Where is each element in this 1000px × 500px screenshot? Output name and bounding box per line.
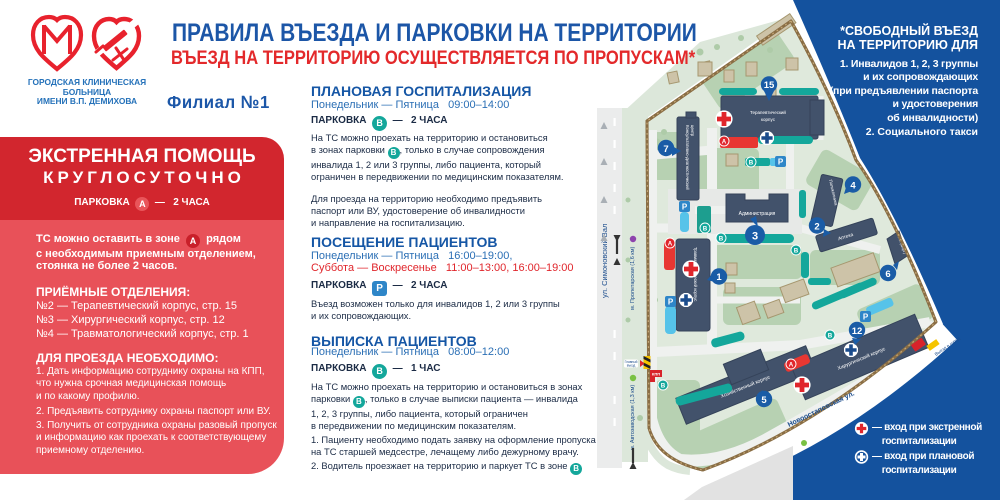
svg-text:корпус: корпус <box>761 117 776 122</box>
svg-text:В: В <box>828 333 833 340</box>
svg-text:12: 12 <box>852 326 863 337</box>
svg-text:А: А <box>668 241 673 248</box>
svg-text:P: P <box>668 298 674 307</box>
svg-text:1: 1 <box>716 272 722 283</box>
svg-text:Администрация: Администрация <box>739 211 776 217</box>
svg-text:В: В <box>703 226 708 233</box>
svg-text:А: А <box>722 139 727 146</box>
svg-text:В: В <box>749 160 754 167</box>
svg-text:P: P <box>778 158 784 167</box>
svg-text:3: 3 <box>752 231 758 243</box>
svg-text:5: 5 <box>761 395 767 406</box>
svg-text:В: В <box>661 383 666 390</box>
svg-text:м. Пролетарская (1,6 км): м. Пролетарская (1,6 км) <box>630 247 636 310</box>
svg-text:P: P <box>682 203 688 212</box>
svg-text:6: 6 <box>885 269 890 280</box>
svg-text:А: А <box>789 362 794 369</box>
svg-text:въезд: въезд <box>627 364 636 368</box>
svg-text:ул. Симоновский Вал: ул. Симоновский Вал <box>600 224 609 298</box>
svg-text:м. Автозаводская (1,3 км): м. Автозаводская (1,3 км) <box>630 385 636 450</box>
svg-text:В: В <box>794 248 799 255</box>
svg-text:Терапевтический: Терапевтический <box>750 109 786 115</box>
svg-text:В: В <box>719 236 724 243</box>
svg-text:15: 15 <box>764 80 775 91</box>
svg-text:P: P <box>863 313 869 322</box>
svg-text:центр: центр <box>690 125 695 137</box>
svg-text:4: 4 <box>850 181 856 192</box>
svg-text:2: 2 <box>814 222 819 233</box>
svg-text:КПП: КПП <box>652 372 660 377</box>
svg-text:Консультативно-диагностический: Консультативно-диагностический <box>685 125 690 191</box>
svg-text:7: 7 <box>663 144 668 155</box>
